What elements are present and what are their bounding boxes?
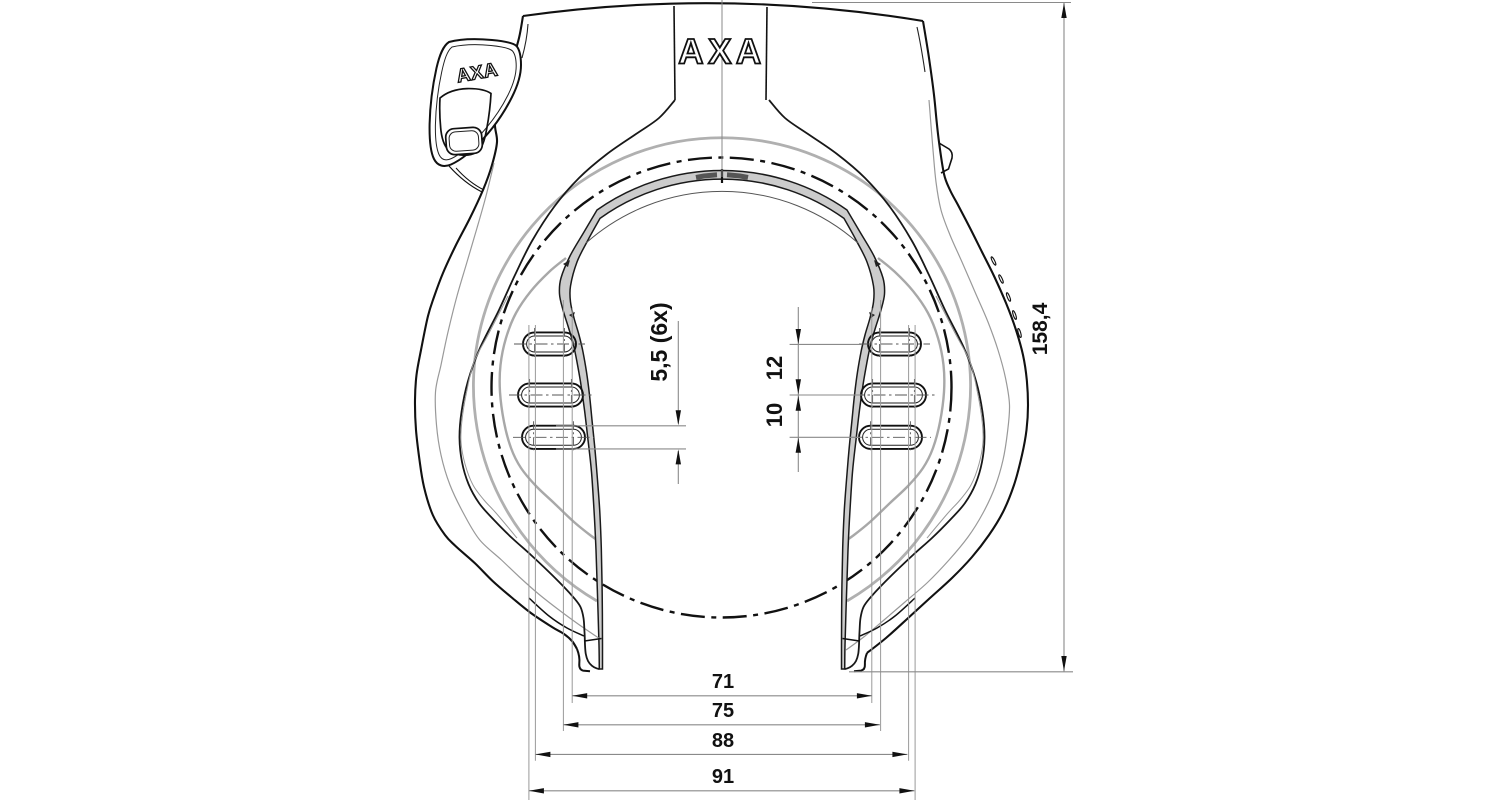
svg-text:71: 71 — [712, 671, 734, 693]
svg-text:88: 88 — [712, 730, 734, 752]
svg-text:75: 75 — [712, 700, 734, 722]
svg-text:10: 10 — [762, 403, 787, 427]
svg-text:158,4: 158,4 — [1029, 302, 1052, 355]
svg-text:AXA: AXA — [678, 33, 765, 72]
svg-text:5,5 (6x): 5,5 (6x) — [646, 302, 672, 381]
svg-text:91: 91 — [712, 766, 734, 788]
svg-text:12: 12 — [762, 356, 787, 380]
